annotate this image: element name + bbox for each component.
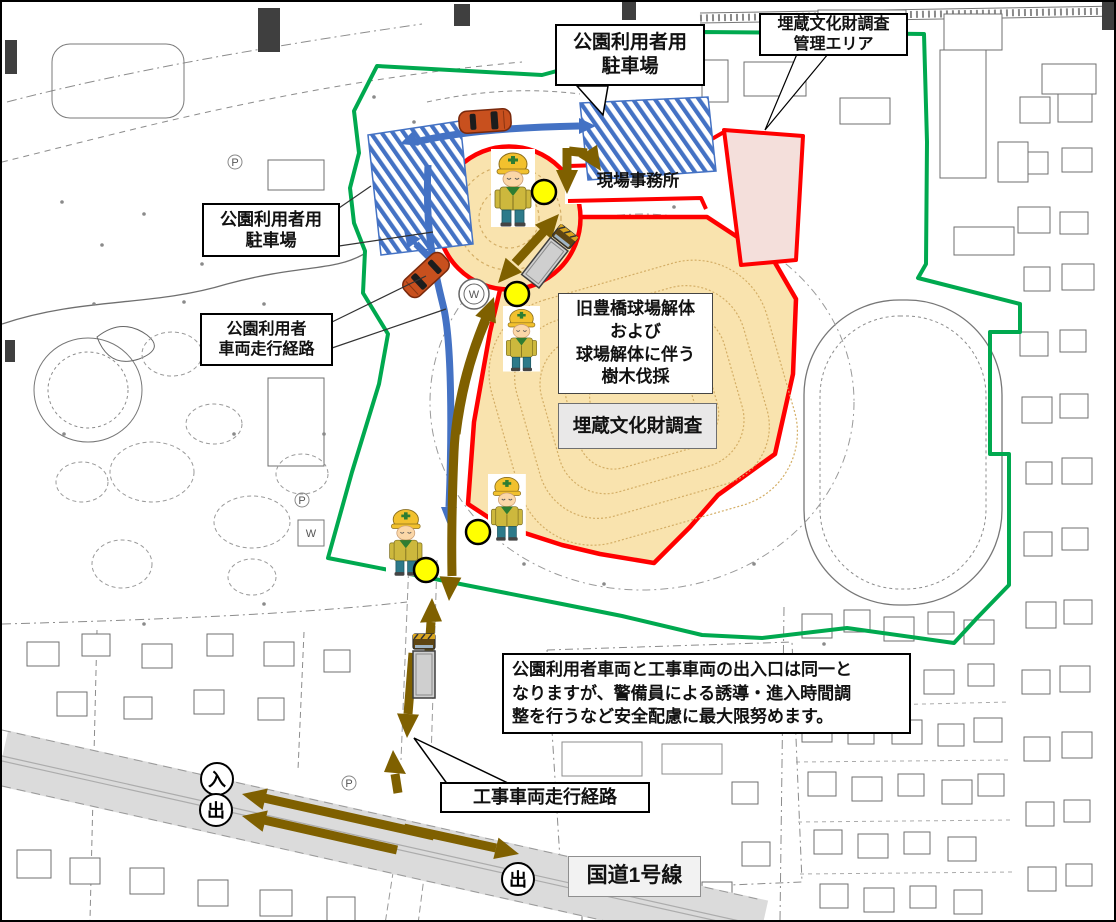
gate-exit-badge-2: 出 <box>501 862 535 896</box>
label-parking-left-line1: 公園利用者用 <box>220 209 322 230</box>
notice-line3: 整を行うなど安全配慮に最大限努めます。 <box>512 705 833 729</box>
road-label: 国道1号線 <box>568 856 701 897</box>
callout-parking-top: 公園利用者用 駐車場 <box>555 24 705 86</box>
label-parking-left: 公園利用者用 駐車場 <box>202 203 340 257</box>
guard-top <box>491 149 535 227</box>
label-visitor-route: 公園利用者 車両走行経路 <box>200 313 333 366</box>
parking-symbol: P <box>231 157 238 169</box>
notice-box: 公園利用者車両と工事車両の出入口は同一と なりますが、警備員による誘導・進入時間… <box>502 653 911 734</box>
road-label-text: 国道1号線 <box>587 863 683 889</box>
demolition-scope-box: 旧豊橋球場解体 および 球場解体に伴う 樹木伐採 <box>558 293 713 394</box>
survey-box: 埋蔵文化財調査 <box>558 403 717 449</box>
callout-survey-area-line1: 埋蔵文化財調査 <box>777 15 889 35</box>
gate-entry-text: 入 <box>208 766 226 792</box>
gate-exit-badge: 出 <box>199 793 233 827</box>
parking-symbol: P <box>345 778 352 790</box>
demolition-line2: および <box>610 321 661 344</box>
callout-survey-area: 埋蔵文化財調査 管理エリア <box>759 13 908 56</box>
guard-mid <box>503 306 540 372</box>
callout-parking-top-line2: 駐車場 <box>601 55 658 79</box>
label-parking-left-line2: 駐車場 <box>246 230 297 251</box>
guard-lower-right <box>488 474 526 541</box>
gate-exit2-text: 出 <box>509 866 527 892</box>
demolition-line4: 樹木伐採 <box>602 366 670 389</box>
water-symbol-letter: W <box>469 289 480 301</box>
callout-construction-route-text: 工事車両走行経路 <box>473 786 617 809</box>
parking-symbol: P <box>298 495 305 507</box>
site-office-label: 現場事務所 <box>565 163 711 200</box>
demolition-line1: 旧豊橋球場解体 <box>576 298 695 321</box>
water-box-letter: W <box>306 528 317 540</box>
label-visitor-route-line1: 公園利用者 <box>226 320 306 340</box>
label-visitor-route-line2: 車両走行経路 <box>218 340 314 360</box>
visitor-car-top <box>458 108 511 134</box>
notice-line2: なりますが、警備員による誘導・進入時間調 <box>512 682 851 706</box>
callout-parking-top-line1: 公園利用者用 <box>573 31 687 55</box>
gate-exit-text: 出 <box>207 797 225 823</box>
survey-box-text: 埋蔵文化財調査 <box>573 414 703 437</box>
callout-survey-area-line2: 管理エリア <box>793 35 873 55</box>
callout-construction-route: 工事車両走行経路 <box>440 782 650 813</box>
gate-entry-badge: 入 <box>200 762 234 796</box>
notice-line1: 公園利用者車両と工事車両の出入口は同一と <box>512 658 852 682</box>
construction-truck-lower <box>413 634 435 698</box>
demolition-line3: 球場解体に伴う <box>576 344 695 367</box>
site-office-label-text: 現場事務所 <box>597 171 680 192</box>
site-traffic-map: W W P P P 公園利用者用 駐車場 埋蔵文化財調査 管理エリア 現場事務所… <box>0 0 1116 922</box>
